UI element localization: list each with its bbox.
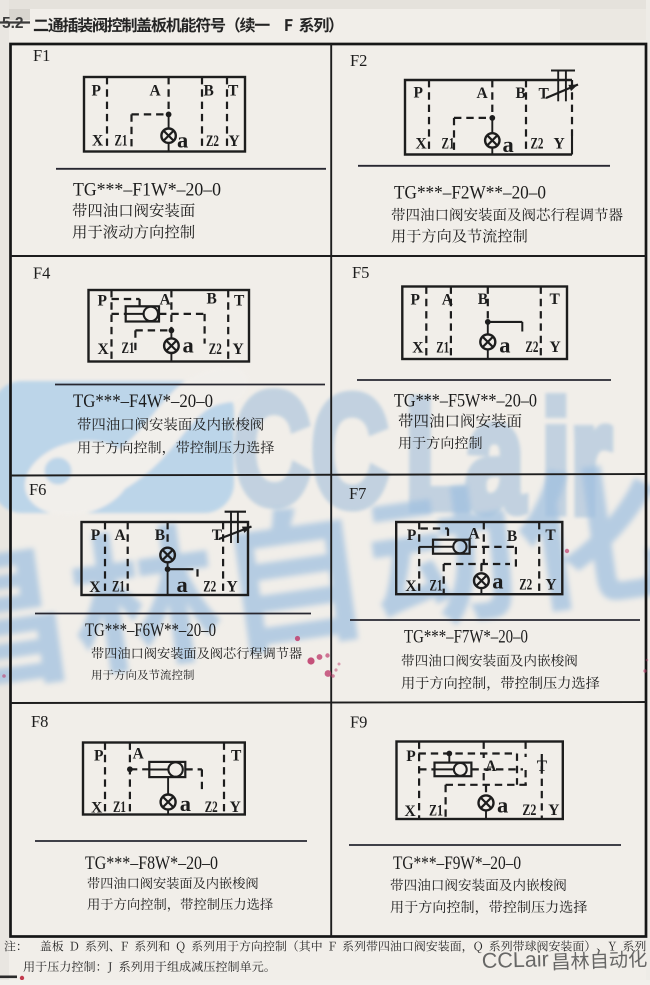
svg-text:A: A [115,527,127,544]
svg-text:B: B [207,291,217,308]
svg-text:X: X [89,579,101,596]
svg-text:T: T [537,758,548,775]
svg-text:X: X [416,136,428,153]
svg-text:a: a [503,132,514,157]
svg-text:TG***–F9W*–20–0: TG***–F9W*–20–0 [393,853,521,874]
svg-text:a: a [497,793,508,818]
svg-text:X: X [91,800,103,817]
svg-text:a: a [180,791,191,816]
svg-text:a: a [177,128,188,153]
svg-text:Z1: Z1 [112,579,125,596]
svg-text:Z2: Z2 [525,339,538,356]
svg-text:Z2: Z2 [205,799,218,816]
svg-text:B: B [204,83,214,100]
svg-text:T: T [231,748,242,765]
svg-text:P: P [406,748,416,765]
svg-text:TG***–F8W*–20–0: TG***–F8W*–20–0 [85,853,218,874]
svg-text:A: A [150,83,162,100]
svg-text:P: P [92,83,102,100]
svg-text:Z1: Z1 [436,340,449,357]
svg-text:X: X [98,341,110,358]
svg-text:P: P [411,292,421,309]
svg-text:Y: Y [548,802,559,819]
svg-text:Z1: Z1 [430,578,443,595]
svg-text:F8: F8 [31,712,48,731]
svg-text:P: P [414,84,424,101]
svg-text:Y: Y [545,577,556,594]
svg-text:T: T [228,83,239,100]
svg-text:T: T [212,527,223,544]
svg-text:Y: Y [230,799,241,816]
svg-text:TG***–F6W**–20–0: TG***–F6W**–20–0 [85,620,216,641]
svg-text:Z1: Z1 [442,136,455,153]
svg-text:B: B [478,291,488,308]
svg-text:Z1: Z1 [113,799,126,816]
svg-text:Z2: Z2 [519,577,532,594]
svg-text:Z2: Z2 [206,133,219,150]
svg-text:Y: Y [233,341,244,358]
svg-text:TG***–F7W*–20–0: TG***–F7W*–20–0 [404,627,528,648]
svg-text:a: a [177,572,188,597]
svg-text:X: X [412,340,424,357]
svg-text:P: P [91,527,101,544]
svg-text:Z2: Z2 [209,341,222,358]
svg-text:X: X [92,133,104,150]
svg-text:F9: F9 [350,713,367,732]
svg-text:Z1: Z1 [115,133,128,150]
svg-text:a: a [183,333,194,358]
svg-text:TG***–F4W*–20–0: TG***–F4W*–20–0 [73,391,213,412]
svg-text:Y: Y [550,339,561,356]
svg-text:A: A [133,746,145,763]
svg-text:X: X [405,803,417,820]
svg-text:T: T [234,293,245,310]
svg-text:TG***–F1W*–20–0: TG***–F1W*–20–0 [73,180,221,201]
svg-text:A: A [442,292,454,309]
svg-text:F6: F6 [29,480,46,499]
svg-text:Y: Y [554,136,565,153]
svg-text:B: B [516,85,526,102]
svg-text:T: T [545,527,556,544]
svg-text:Y: Y [227,579,238,596]
svg-text:Y: Y [229,133,240,150]
svg-text:F2: F2 [350,51,367,70]
svg-text:a: a [499,333,510,358]
svg-text:P: P [407,527,417,544]
svg-text:T: T [550,291,561,308]
svg-text:F1: F1 [33,46,50,65]
svg-text:F7: F7 [349,484,366,503]
svg-text:a: a [492,569,503,594]
svg-text:A: A [469,526,481,543]
svg-text:CCLair: CCLair [482,947,550,973]
svg-text:F5: F5 [352,263,369,282]
svg-text:A: A [485,758,497,775]
svg-text:B: B [507,528,517,545]
svg-text:Z2: Z2 [522,802,536,819]
svg-text:B: B [155,527,165,544]
svg-text:TG***–F2W**–20–0: TG***–F2W**–20–0 [394,183,546,204]
svg-text:X: X [405,578,417,595]
svg-text:A: A [477,85,489,102]
svg-text:F4: F4 [33,264,50,283]
svg-text:Z1: Z1 [429,803,443,820]
svg-text:P: P [94,748,104,765]
svg-text:Z1: Z1 [122,340,135,357]
svg-text:Z2: Z2 [203,579,216,596]
svg-text:Z2: Z2 [531,136,544,153]
svg-text:A: A [160,292,172,309]
svg-text:TG***–F5W**–20–0: TG***–F5W**–20–0 [394,391,537,412]
svg-text:P: P [98,293,108,310]
svg-text:T: T [539,86,550,103]
